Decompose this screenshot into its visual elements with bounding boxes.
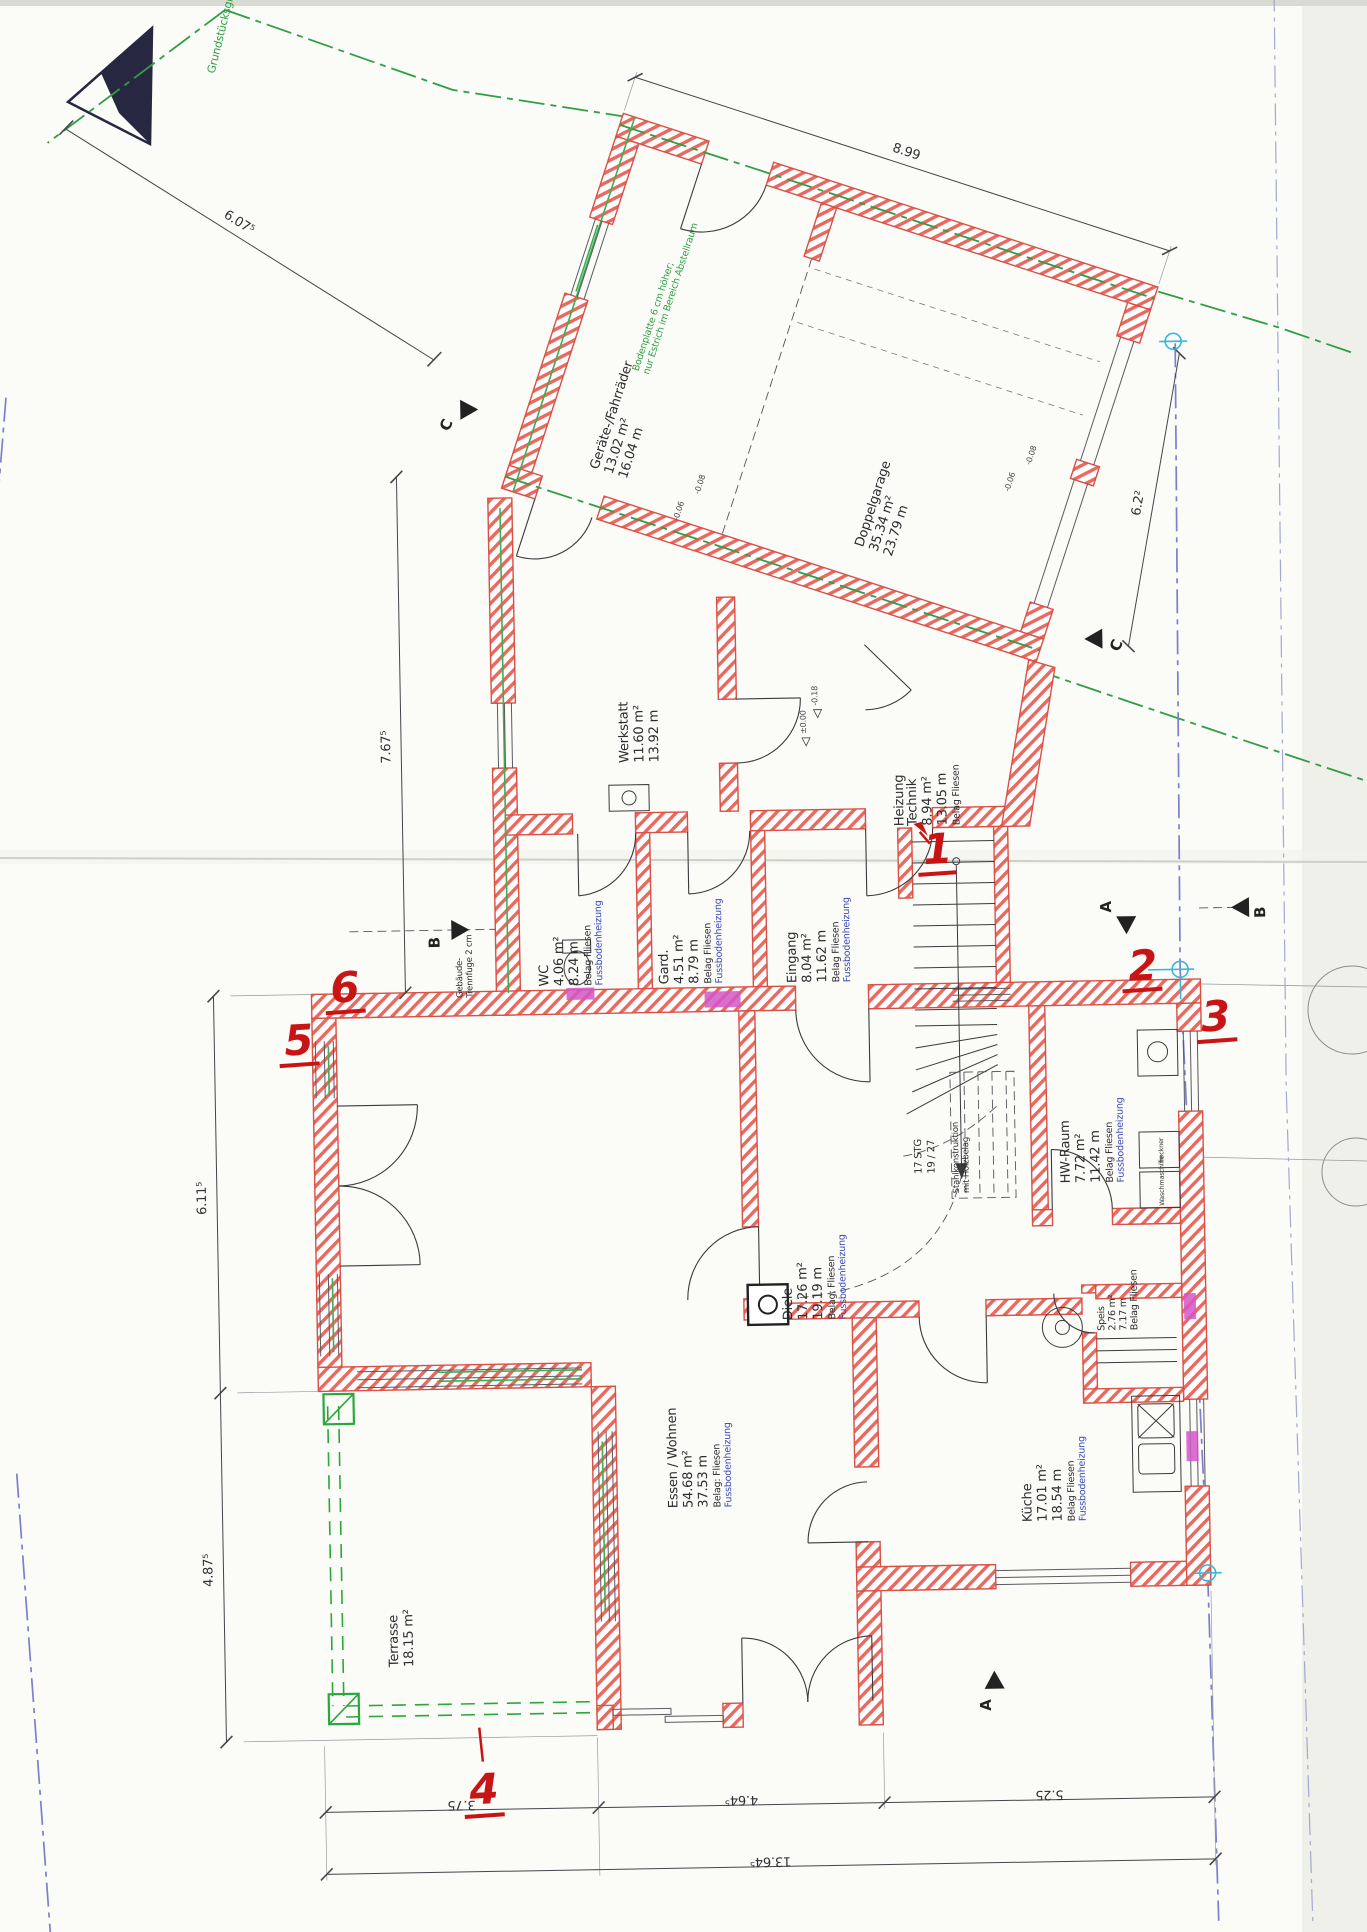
dimension-label: 4.64⁵: [725, 1792, 758, 1808]
section-marker-a2: A: [977, 1699, 995, 1711]
svg-text:4.06 m²: 4.06 m²: [551, 936, 567, 986]
svg-text:13.92 m: 13.92 m: [647, 710, 663, 763]
dimension-label: 7.67⁵: [379, 730, 395, 763]
svg-text:mit Holzbelag: mit Holzbelag: [961, 1137, 972, 1193]
svg-text:18.15 m²: 18.15 m²: [401, 1609, 417, 1667]
svg-text:2.76 m²: 2.76 m²: [1107, 1294, 1119, 1330]
svg-text:Fussbodenheizung: Fussbodenheizung: [722, 1422, 734, 1507]
svg-text:Fussbodenheizung: Fussbodenheizung: [1076, 1436, 1088, 1521]
svg-text:4: 4: [467, 1764, 500, 1815]
svg-text:Belag Fliesen: Belag Fliesen: [1128, 1269, 1140, 1330]
svg-text:-0.18: -0.18: [810, 686, 819, 706]
svg-text:Gard.: Gard.: [657, 950, 673, 985]
svg-text:17 STG: 17 STG: [913, 1139, 925, 1174]
svg-text:17.26 m²: 17.26 m²: [795, 1262, 811, 1320]
dimension-label: 5.25: [1035, 1786, 1063, 1801]
svg-text:Eingang: Eingang: [784, 932, 800, 984]
section-marker-b1: B: [425, 937, 443, 949]
room-label-werkstatt: Werkstatt11.60 m²13.92 m: [616, 701, 662, 763]
svg-text:3: 3: [1200, 991, 1232, 1041]
svg-text:7.72 m²: 7.72 m²: [1073, 1133, 1089, 1183]
svg-text:54.68 m²: 54.68 m²: [680, 1450, 696, 1508]
svg-text:Belag Fliesen: Belag Fliesen: [951, 764, 963, 825]
svg-text:8.79 m: 8.79 m: [687, 939, 703, 984]
svg-text:Trennfuge 2 cm: Trennfuge 2 cm: [464, 934, 475, 998]
svg-text:Küche: Küche: [1020, 1483, 1036, 1522]
scanned-floor-plan: Grundstücksgrenze: [0, 0, 1367, 1932]
svg-text:Fussbodenheizung: Fussbodenheizung: [1114, 1097, 1126, 1182]
svg-text:17.01 m²: 17.01 m²: [1035, 1464, 1051, 1522]
svg-text:1: 1: [922, 824, 954, 874]
svg-text:11.62 m: 11.62 m: [814, 930, 830, 983]
svg-text:8.24 m: 8.24 m: [567, 941, 583, 986]
svg-text:Technik: Technik: [905, 778, 921, 827]
svg-text:13.05 m: 13.05 m: [935, 773, 951, 826]
svg-text:4.51 m²: 4.51 m²: [671, 934, 687, 984]
dimension-label: 4.87⁵: [201, 1554, 217, 1587]
svg-text:WC: WC: [537, 965, 552, 987]
svg-text:Fussbodenheizung: Fussbodenheizung: [837, 1234, 849, 1319]
svg-text:Essen / Wohnen: Essen / Wohnen: [665, 1408, 682, 1509]
svg-text:8.04 m²: 8.04 m²: [799, 933, 815, 983]
section-marker-a1: A: [1097, 900, 1115, 912]
svg-text:6: 6: [329, 962, 361, 1012]
svg-text:±0.00: ±0.00: [799, 710, 808, 734]
room-label-terrasse: Terrasse18.15 m²: [386, 1609, 417, 1668]
svg-text:11.42 m: 11.42 m: [1088, 1130, 1104, 1183]
svg-text:Gebäude-: Gebäude-: [455, 958, 466, 998]
svg-text:2: 2: [1127, 940, 1159, 990]
svg-text:Fussbodenheizung: Fussbodenheizung: [841, 897, 853, 982]
svg-text:19 / 27: 19 / 27: [926, 1140, 938, 1174]
dimension-label: 13.64⁵: [750, 1853, 791, 1869]
svg-text:11.60 m²: 11.60 m²: [631, 705, 647, 763]
svg-text:37.53 m: 37.53 m: [696, 1455, 712, 1508]
svg-text:Stahlkonstruktion: Stahlkonstruktion: [951, 1122, 962, 1194]
svg-text:19.19 m: 19.19 m: [810, 1267, 826, 1320]
dimension-label: 6.11⁵: [195, 1182, 211, 1215]
svg-text:Werkstatt: Werkstatt: [616, 702, 632, 764]
svg-text:Terrasse: Terrasse: [386, 1615, 402, 1669]
svg-text:Waschmaschine: Waschmaschine: [1157, 1156, 1166, 1206]
svg-text:Fussbodenheizung: Fussbodenheizung: [593, 900, 605, 985]
svg-text:8.94 m²: 8.94 m²: [920, 776, 936, 826]
svg-text:Speis: Speis: [1096, 1306, 1107, 1331]
svg-text:5: 5: [283, 1015, 315, 1065]
svg-text:Fussbodenheizung: Fussbodenheizung: [713, 898, 725, 983]
svg-text:Diele: Diele: [781, 1288, 797, 1321]
svg-text:18.54 m: 18.54 m: [1050, 1469, 1066, 1522]
scan-edge-top: [0, 0, 1367, 6]
svg-text:7.17 m: 7.17 m: [1118, 1298, 1130, 1330]
section-marker-b2: B: [1251, 907, 1269, 919]
svg-text:HW-Raum: HW-Raum: [1058, 1120, 1074, 1183]
